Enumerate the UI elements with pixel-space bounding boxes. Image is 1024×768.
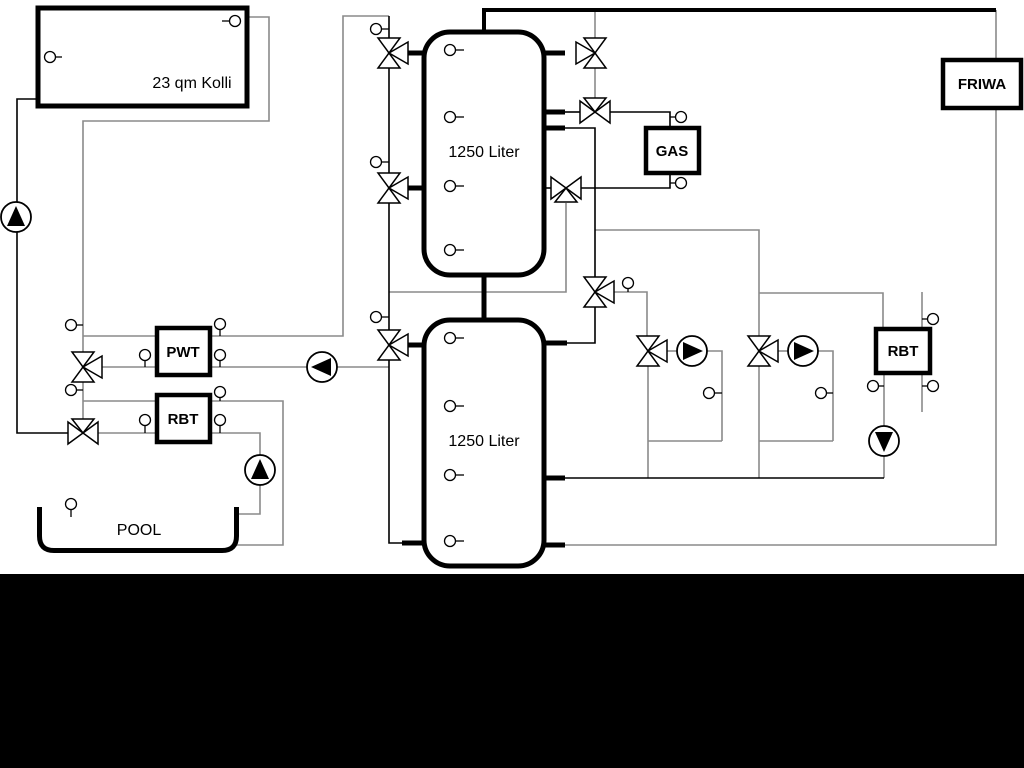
- pipe-tank-top-main: [484, 10, 996, 30]
- rbt-heat-exchanger-pool: RBT: [157, 395, 210, 442]
- three-way-valve-heating-circuit-1: [637, 336, 667, 366]
- sensor-rbt-right-bottom: [215, 415, 226, 426]
- buffer-tank-1: 1250 Liter: [424, 32, 544, 275]
- pump-solar-icon: [1, 202, 31, 232]
- sensor-rbt-right-secondary-bottom: [928, 381, 939, 392]
- sensor-valve-line-1: [371, 24, 382, 35]
- three-way-valve-gas-supply: [580, 98, 610, 123]
- buffer-tank-2: 1250 Liter: [424, 320, 544, 566]
- sensor-heating2-return: [816, 388, 827, 399]
- pipe-gas-supply: [610, 112, 670, 128]
- pipe-rbt-lower-right: [210, 433, 260, 455]
- heating-schematic: 23 qm Kolli 1250 Liter 1250 Liter GAS FR…: [0, 0, 1024, 768]
- pump-heating-circuit-2-icon: [788, 336, 818, 366]
- friwa-station: FRIWA: [943, 60, 1021, 108]
- sensor-pwt-left: [140, 350, 151, 361]
- sensor-heating1-return: [704, 388, 715, 399]
- rbt-heat-exchanger-right: RBT: [876, 329, 930, 373]
- three-way-valve-tank1-top-right: [576, 38, 606, 68]
- three-way-valve-pool-rbt: [68, 419, 98, 444]
- pipe-tank-valve-line: [389, 16, 404, 543]
- gas-boiler-label: GAS: [656, 143, 689, 160]
- solar-collector-label: 23 qm Kolli: [152, 75, 231, 92]
- sensor-gas-return: [676, 178, 687, 189]
- gas-boiler: GAS: [646, 128, 699, 173]
- three-way-valve-tank2-left: [378, 330, 408, 360]
- sensor-tank1-4: [445, 245, 456, 256]
- sensor-tank1-2: [445, 112, 456, 123]
- three-way-valve-heating-circuit-2: [748, 336, 778, 366]
- pipe-rbt-right-supply: [759, 293, 883, 329]
- sensor-tank2-2: [445, 401, 456, 412]
- rbt-right-label: RBT: [888, 343, 919, 360]
- sensor-tank2-4: [445, 536, 456, 547]
- friwa-label: FRIWA: [958, 76, 1006, 93]
- pipe-heating1-supply: [614, 292, 647, 336]
- three-way-valve-gas-return: [551, 177, 581, 202]
- three-way-valve-tank1-top-left: [378, 38, 408, 68]
- sensor-collector-high: [230, 16, 241, 27]
- three-way-valve-heating-distribution: [584, 277, 614, 307]
- schematic-canvas: 23 qm Kolli 1250 Liter 1250 Liter GAS FR…: [0, 0, 1024, 768]
- pump-pool-icon: [245, 455, 275, 485]
- buffer-tank-1-label: 1250 Liter: [448, 144, 520, 161]
- pool: POOL: [40, 507, 237, 551]
- three-way-valve-pwt: [72, 352, 102, 382]
- pump-rbt-right-icon: [869, 426, 899, 456]
- sensor-rbt-left: [140, 415, 151, 426]
- pwt-heat-exchanger: PWT: [157, 328, 210, 375]
- sensor-pwt-right-top: [215, 319, 226, 330]
- sensor-tank1-1: [445, 45, 456, 56]
- three-way-valve-tank1-mid-left: [378, 173, 408, 203]
- pump-heating-circuit-1-icon: [677, 336, 707, 366]
- rbt-left-label: RBT: [168, 411, 199, 428]
- sensor-tank2-1: [445, 333, 456, 344]
- sensor-rbt-right-primary: [868, 381, 879, 392]
- sensor-pool: [66, 499, 77, 510]
- sensor-tank2-3: [445, 470, 456, 481]
- sensor-valve-line-2: [371, 157, 382, 168]
- sensor-pwt-inlet: [66, 320, 77, 331]
- sensor-heating1-supply: [623, 278, 634, 289]
- sensor-collector-low: [45, 52, 56, 63]
- pipe-heating2-supply: [595, 230, 759, 336]
- pipe-solar-flow: [17, 99, 68, 433]
- buffer-tank-2-label: 1250 Liter: [448, 433, 520, 450]
- pump-pwt-icon: [307, 352, 337, 382]
- pool-label: POOL: [117, 522, 162, 539]
- pipe-valve-to-tank2: [567, 307, 595, 343]
- sensor-rbt-inlet: [66, 385, 77, 396]
- sensor-pwt-right-bottom: [215, 350, 226, 361]
- sensor-gas-supply: [676, 112, 687, 123]
- sensor-valve-line-3: [371, 312, 382, 323]
- solar-collector: 23 qm Kolli: [38, 8, 247, 106]
- sensor-rbt-right-top: [215, 387, 226, 398]
- bottom-mask: [0, 574, 1024, 768]
- sensor-rbt-right-secondary-top: [928, 314, 939, 325]
- pwt-label: PWT: [166, 344, 199, 361]
- sensor-tank1-3: [445, 181, 456, 192]
- pipe-pool-feed: [237, 485, 260, 514]
